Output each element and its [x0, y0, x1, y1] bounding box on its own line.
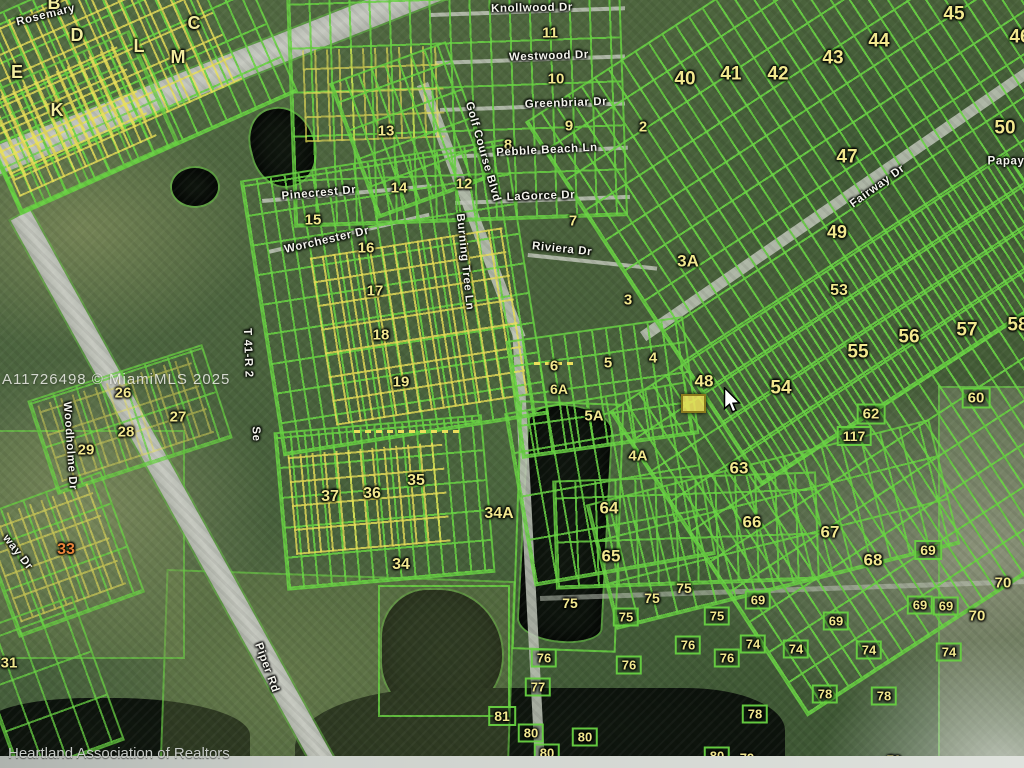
section-number-label: 37: [321, 489, 339, 505]
section-number-label: 44: [868, 32, 889, 51]
street-name-label: Burning Tree Ln: [453, 213, 475, 311]
section-number-label: 43: [822, 49, 843, 68]
section-number-label: 4: [649, 351, 657, 366]
section-number-label: 57: [956, 321, 977, 340]
section-number-label: 54: [770, 379, 791, 398]
section-number-label: 12: [456, 177, 473, 192]
survey-grid-label: T 41-R 2: [240, 328, 253, 378]
section-number-label: 75: [562, 596, 578, 610]
section-number-label: 5: [604, 356, 612, 371]
block-letter-label: E: [11, 63, 23, 81]
street-name-label: LaGorce Dr: [506, 190, 575, 204]
block-letter-label: B: [48, 0, 61, 12]
section-number-label: 80: [572, 728, 598, 747]
section-number-label: 49: [827, 223, 847, 241]
section-number-label: 34A: [484, 506, 513, 522]
section-number-label: 35: [407, 473, 425, 489]
mls-watermark: A11726498 © MiamiMLS 2025: [2, 371, 230, 388]
section-number-label: 76: [675, 636, 701, 655]
section-number-label: 78: [871, 687, 897, 706]
section-number-label: 31: [1, 656, 18, 671]
section-number-label: 18: [373, 328, 390, 343]
block-letter-label: K: [51, 101, 64, 119]
section-number-label: 4A: [628, 449, 647, 464]
section-number-label: 3: [624, 293, 632, 308]
section-number-label: 11: [542, 26, 558, 41]
section-number-label: 76: [714, 649, 740, 668]
section-number-label: 48: [695, 373, 714, 390]
section-number-label: 47: [836, 148, 857, 167]
section-number-label: 74: [783, 640, 809, 659]
section-number-label: 69: [745, 591, 771, 610]
section-number-label: 63: [730, 460, 749, 477]
section-number-label: 15: [305, 213, 322, 228]
section-number-label: 81: [488, 706, 516, 726]
section-number-label: 14: [391, 181, 408, 196]
section-number-label: 69: [823, 612, 849, 631]
section-number-label: 75: [704, 607, 730, 626]
section-number-label: 6A: [550, 382, 568, 396]
section-number-label: 6: [550, 359, 558, 374]
highlighted-parcel[interactable]: [681, 394, 706, 413]
section-number-label: 2: [639, 120, 647, 135]
realtor-credit: Heartland Association of Realtors: [8, 745, 230, 762]
section-number-label: 76: [531, 649, 557, 668]
section-number-label: 13: [378, 124, 395, 139]
section-number-label: 33: [57, 542, 75, 558]
section-number-label: 75: [676, 581, 692, 595]
section-number-label: 68: [864, 552, 883, 569]
section-number-label: 60: [962, 388, 991, 409]
section-number-label: 75: [644, 591, 660, 605]
section-number-label: 9: [565, 119, 573, 134]
section-number-label: 58: [1007, 316, 1024, 335]
section-number-label: 36: [363, 486, 381, 502]
section-number-label: 56: [898, 328, 919, 347]
street-name-label: Papay: [988, 156, 1024, 168]
section-number-label: 7: [569, 214, 577, 229]
street-name-label: Pinecrest Dr: [281, 185, 357, 203]
section-number-label: 40: [674, 70, 695, 89]
street-name-label: Westwood Dr: [509, 50, 589, 64]
section-number-label: 70: [969, 609, 986, 624]
section-number-label: 10: [548, 72, 565, 87]
section-number-label: 117: [837, 426, 872, 446]
section-number-label: 69: [933, 597, 959, 616]
block-letter-label: L: [134, 37, 145, 55]
street-name-label: Greenbriar Dr: [525, 97, 608, 111]
section-number-label: 65: [602, 548, 621, 565]
section-number-label: 69: [907, 596, 933, 615]
street-name-label: Woodholme Dr: [60, 401, 78, 490]
block-letter-label: M: [171, 48, 186, 66]
mouse-cursor-icon: [723, 387, 741, 419]
section-number-label: 80: [518, 724, 544, 743]
section-number-label: 67: [821, 524, 840, 541]
street-name-label: Piper Rd: [252, 642, 281, 695]
section-number-label: 29: [78, 443, 95, 458]
section-number-label: 64: [600, 500, 619, 517]
section-number-label: 75: [613, 608, 639, 627]
street-name-label: way Dr: [0, 533, 34, 573]
section-number-label: 74: [856, 641, 882, 660]
section-number-label: 77: [525, 678, 551, 697]
street-name-label: Pebble Beach Ln: [496, 143, 598, 160]
section-number-label: 74: [936, 643, 962, 662]
dash-marks-riviera: [354, 430, 464, 433]
section-number-label: 66: [743, 514, 762, 531]
street-name-label: Rosemary: [15, 3, 76, 29]
street-name-label: Riviera Dr: [531, 241, 592, 259]
section-number-label: 5A: [584, 409, 603, 424]
section-number-label: 16: [358, 241, 375, 256]
section-number-label: 19: [393, 375, 410, 390]
street-name-label: Knollwood Dr: [491, 3, 573, 16]
section-number-label: 53: [830, 283, 848, 299]
section-number-label: 45: [943, 5, 964, 24]
section-number-label: 42: [767, 65, 788, 84]
section-number-label: 3A: [677, 253, 699, 270]
street-name-label: Fairway Dr: [848, 163, 907, 210]
section-number-label: 41: [720, 65, 741, 84]
map-viewport[interactable]: 1110982712131415161718193A34041424344454…: [0, 0, 1024, 768]
survey-grid-label: Se: [249, 426, 261, 442]
block-letter-label: D: [71, 26, 84, 44]
section-number-label: 28: [118, 425, 135, 440]
section-number-label: 78: [812, 685, 838, 704]
section-number-label: 34: [392, 557, 410, 573]
section-number-label: 27: [170, 410, 187, 425]
section-number-label: 50: [994, 119, 1015, 138]
section-number-label: 69: [914, 540, 942, 560]
section-number-label: 46: [1009, 28, 1024, 47]
section-number-label: 70: [995, 576, 1012, 591]
section-number-label: 17: [367, 284, 384, 299]
section-number-label: 78: [742, 705, 768, 724]
section-number-label: 74: [740, 635, 766, 654]
section-number-label: 55: [847, 343, 868, 362]
section-number-label: 76: [616, 656, 642, 675]
section-number-label: 62: [857, 404, 886, 425]
block-letter-label: C: [188, 14, 201, 32]
